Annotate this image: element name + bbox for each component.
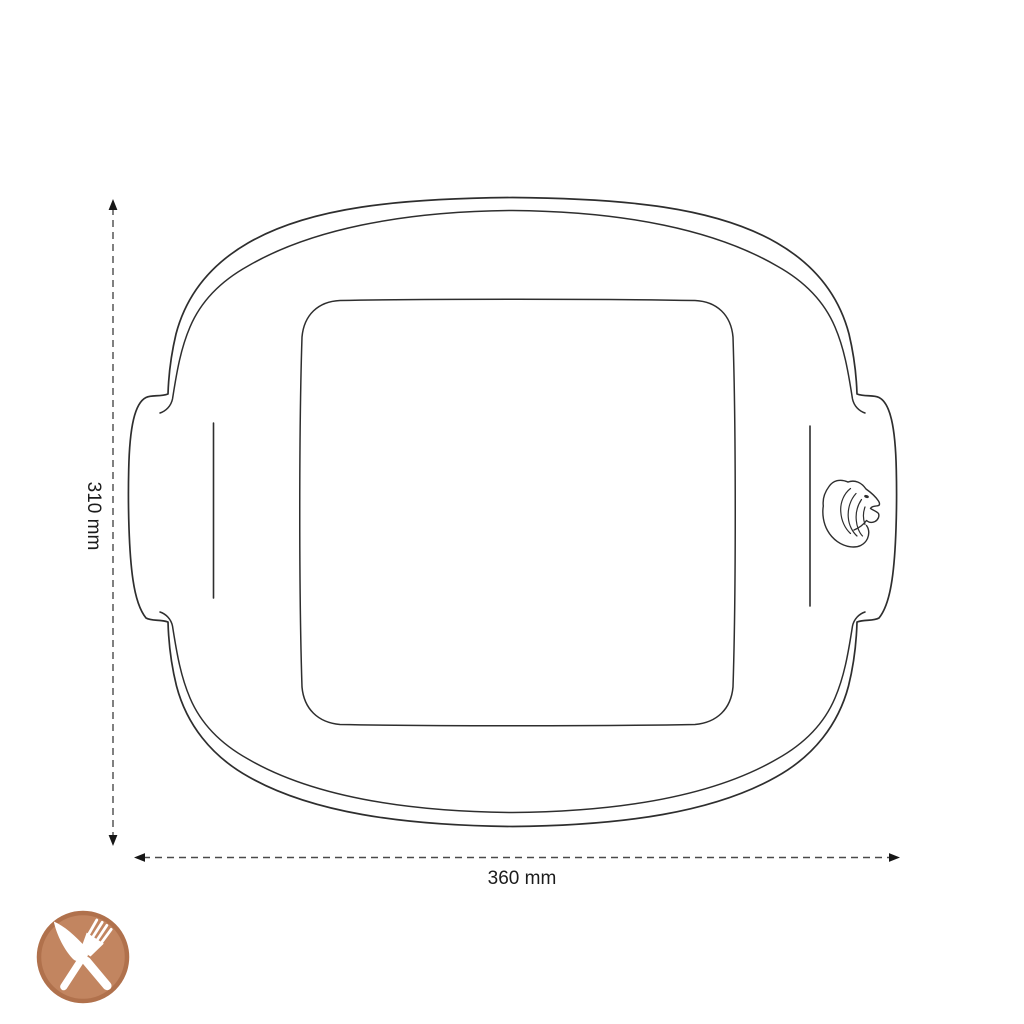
brand-badge (39, 913, 127, 1001)
dimension-annotations: 310 mm 360 mm (83, 199, 900, 889)
baking-dish-drawing (128, 198, 896, 827)
width-arrowhead-left (134, 853, 145, 862)
lion-mane-strokes (841, 489, 865, 537)
width-dimension-label: 360 mm (488, 868, 557, 889)
height-arrowhead-bottom (109, 835, 118, 846)
height-dimension-label: 310 mm (83, 482, 104, 551)
product-dimension-diagram: 310 mm 360 mm (0, 0, 1024, 1024)
lion-mane-path (823, 480, 869, 547)
lion-eye (864, 494, 869, 498)
height-arrowhead-top (109, 199, 118, 210)
dish-inner-rim-top (160, 211, 865, 414)
dish-outer-outline (128, 198, 896, 827)
dish-cavity-outline (300, 299, 736, 726)
dish-inner-rim-bottom (160, 612, 865, 813)
lion-head-logo (823, 480, 880, 547)
width-arrowhead-right (889, 853, 900, 862)
lion-face-path (848, 481, 880, 530)
